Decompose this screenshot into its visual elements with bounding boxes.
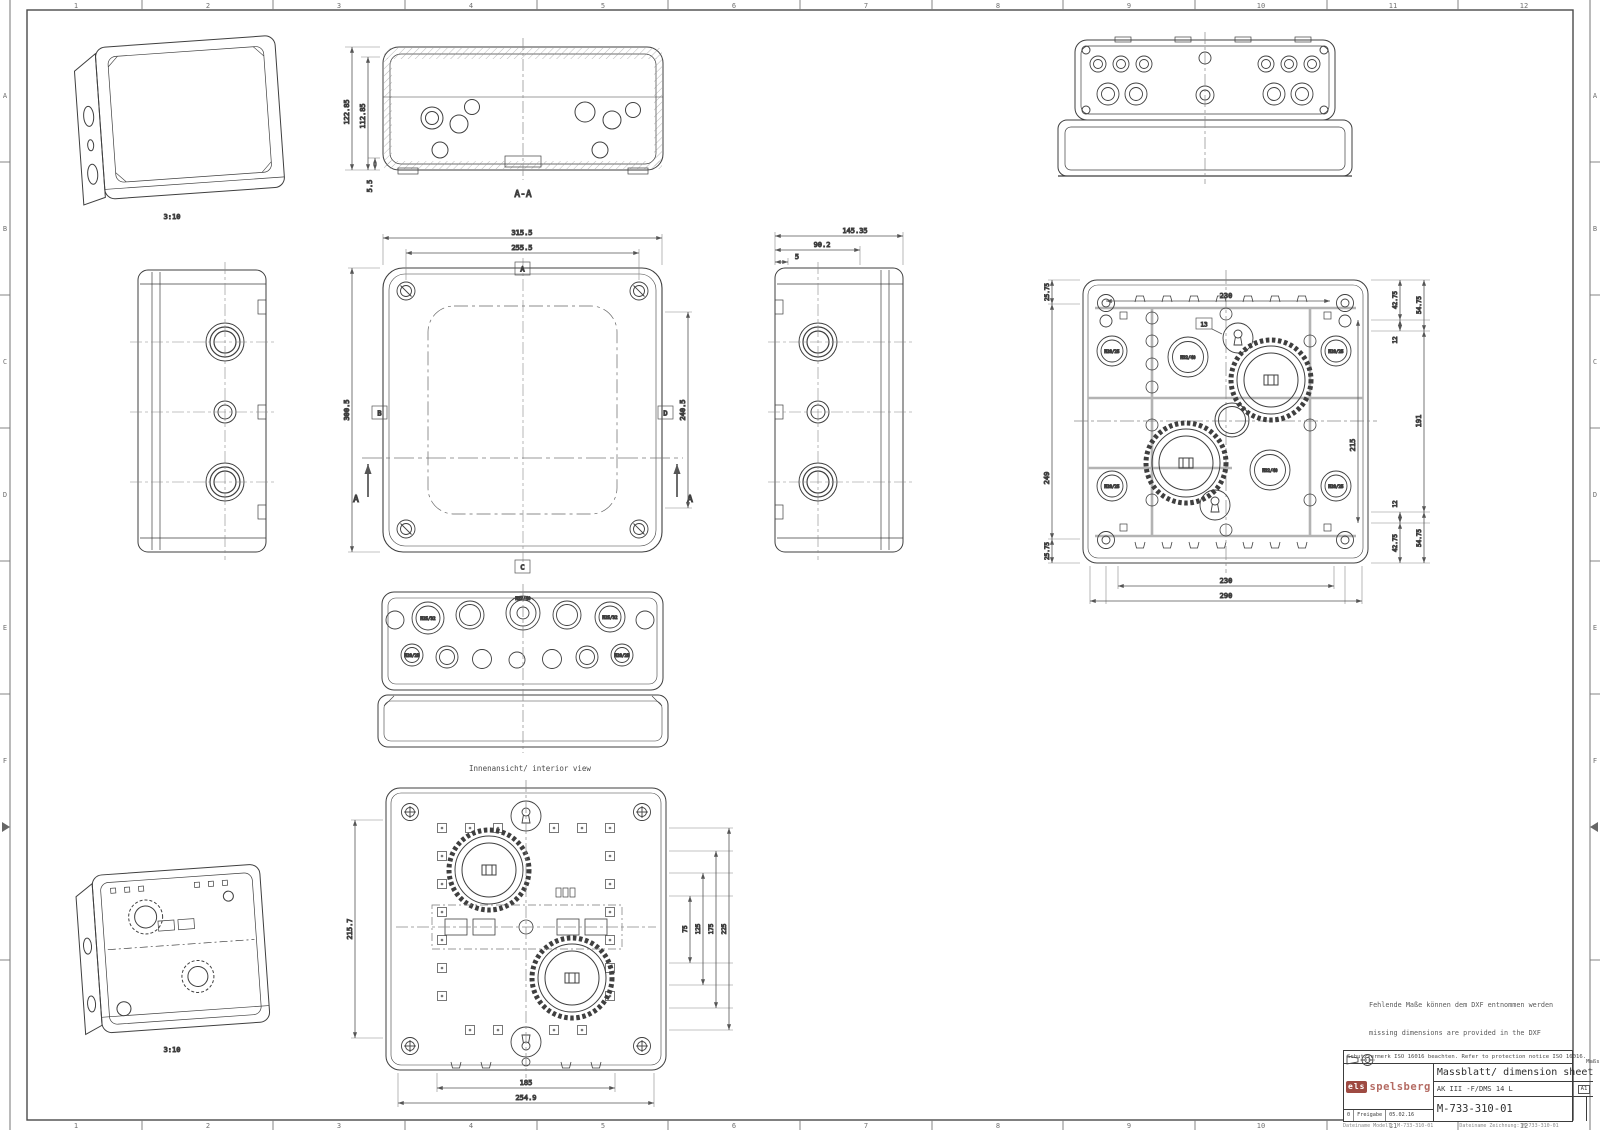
col-label: 2 [206, 1122, 210, 1130]
gland-label: M25/32 [602, 615, 618, 620]
dim-rear-lm: 249 [1043, 472, 1051, 485]
iso-open-scale: 3:10 [164, 1046, 181, 1054]
revision-row: 0 Freigabe 05.02.16 [1344, 1109, 1433, 1121]
drawing-number: M-733-310-01 [1437, 1103, 1513, 1115]
interior-caption: Innenansicht/ interior view [469, 764, 591, 773]
col-label: 5 [601, 2, 605, 10]
title-block-info-cell: Massblatt/ dimension sheet AK III -F/DMS… [1434, 1064, 1594, 1121]
gland-label: M20/25 [1328, 484, 1344, 489]
rear-view: M20/25 M20/25 M20/25 M20/25 M32/40 M32/4… [1043, 270, 1430, 604]
row-label: D [3, 491, 7, 499]
dim-section-outer: 122.85 [343, 99, 351, 124]
projection-symbol [1586, 1097, 1593, 1121]
dim-front-h1: 300.5 [343, 399, 351, 420]
drawing-sheet: 1 2 3 4 5 6 7 8 9 10 11 12 1 2 3 4 5 6 7… [0, 0, 1600, 1130]
note-en: missing dimensions are provided in the D… [1369, 1029, 1541, 1037]
brand-logo: els spelsberg [1344, 1064, 1433, 1109]
front-view: A A 315.5 255.5 300.5 240.5 A B D C [343, 229, 693, 573]
dim-rear-lb: 25.75 [1044, 542, 1051, 560]
fold-mark-left [2, 822, 10, 832]
dim-side-d2: 90.2 [814, 241, 831, 249]
col-label: 12 [1520, 2, 1528, 10]
left-side-view [130, 262, 275, 560]
ref-left: B [377, 410, 381, 418]
col-label: 2 [206, 2, 210, 10]
col-label: 4 [469, 2, 473, 10]
col-label: 3 [337, 2, 341, 10]
section-label: A-A [514, 189, 531, 200]
col-label: 6 [732, 1122, 736, 1130]
iso-closed-scale: 3:10 [164, 213, 181, 221]
title-block-body: els spelsberg 0 Freigabe 05.02.16 Massbl… [1344, 1064, 1572, 1121]
file-drawing: Dateiname Zeichnung: M-733-310-01 [1459, 1123, 1558, 1129]
gland-label: M20/25 [1104, 349, 1120, 354]
col-label: 4 [469, 1122, 473, 1130]
sheet-format: A1 [1578, 1085, 1591, 1094]
bottom-view: M25/32 M32/40 M25/32 M20/25 M20/25 [378, 584, 668, 753]
revision-date: 05.02.16 [1386, 1110, 1417, 1121]
product-row: AK III -F/DMS 14 L A1 [1434, 1082, 1594, 1097]
row-label: E [3, 624, 7, 632]
fold-mark-right [1590, 822, 1598, 832]
col-label: 6 [732, 2, 736, 10]
gland-label: M20/25 [404, 653, 420, 658]
col-label: 5 [601, 1122, 605, 1130]
dim-int-r3: 175 [708, 923, 715, 934]
row-label: B [3, 225, 7, 233]
row-label: C [1593, 358, 1597, 366]
dim-section-base: 5.5 [366, 180, 374, 193]
dim-rear-mid: 191 [1415, 415, 1423, 428]
dim-rear-b2: 290 [1220, 592, 1233, 600]
dim-int-b2: 254.9 [515, 1094, 536, 1102]
dim-rear-rg: 12 [1392, 336, 1399, 344]
cut-label-left: A [353, 494, 359, 505]
dim-front-h2: 240.5 [679, 399, 687, 420]
dim-front-w2: 255.5 [511, 244, 532, 252]
dim-side-d3: 5 [795, 253, 799, 261]
dim-rear-b1: 230 [1220, 577, 1233, 585]
dim-int-b1: 185 [520, 1079, 533, 1087]
col-label: 10 [1257, 2, 1265, 10]
revision-description: Freigabe [1354, 1110, 1386, 1121]
gland-label: M25/32 [420, 616, 436, 621]
iso-open-view: 3:10 [75, 864, 271, 1054]
dim-int-r1: 75 [682, 925, 689, 933]
drawing-canvas: 1 2 3 4 5 6 7 8 9 10 11 12 1 2 3 4 5 6 7… [0, 0, 1600, 1130]
dim-int-r2: 125 [695, 923, 702, 934]
row-label: A [1593, 92, 1598, 100]
grid-labels: 1 2 3 4 5 6 7 8 9 10 11 12 1 2 3 4 5 6 7… [3, 2, 1598, 1130]
dim-rear-rgb: 12 [1392, 500, 1399, 508]
first-angle-projection-icon [1344, 1051, 1376, 1069]
ref-top: A [520, 266, 525, 274]
dim-side-d1: 145.35 [842, 227, 867, 235]
dim-front-w1: 315.5 [511, 229, 532, 237]
col-label: 1 [74, 2, 78, 10]
document-title: Massblatt/ dimension sheet [1434, 1064, 1594, 1082]
drawing-number-row: M-733-310-01 [1434, 1097, 1594, 1121]
protection-note: Schutzvermerk ISO 16016 beachten. Refer … [1347, 1054, 1586, 1060]
col-label: 3 [337, 1122, 341, 1130]
dim-int-left: 215.7 [346, 918, 354, 939]
row-label: B [1593, 225, 1597, 233]
top-view [1058, 32, 1352, 184]
section-view: 122.85 112.85 5.5 A-A [343, 38, 663, 200]
row-label: C [3, 358, 7, 366]
dim-section-inner: 112.85 [359, 103, 367, 128]
revision-number: 0 [1344, 1110, 1354, 1121]
dim-rear-inner: 215 [1349, 439, 1357, 452]
col-label: 8 [996, 1122, 1000, 1130]
title-block-brand-cell: els spelsberg 0 Freigabe 05.02.16 [1344, 1064, 1434, 1121]
dim-rear-rt1: 42.75 [1392, 291, 1399, 309]
col-label: 9 [1127, 1122, 1131, 1130]
col-label: 10 [1257, 1122, 1265, 1130]
brand-wordmark: spelsberg [1369, 1081, 1430, 1093]
gland-label: M20/25 [1104, 484, 1120, 489]
dim-rear-rb1: 42.75 [1392, 534, 1399, 552]
ref-right: D [663, 410, 667, 418]
file-model: Dateiname Modell: M-733-310-01 [1343, 1123, 1433, 1129]
title-block-header: Schutzvermerk ISO 16016 beachten. Refer … [1344, 1051, 1572, 1064]
iso-closed-view: 3:10 [73, 35, 285, 221]
flag-label: 13 [1200, 322, 1208, 329]
file-name-row: Dateiname Modell: M-733-310-01 Dateiname… [1343, 1123, 1593, 1129]
ref-bottom: C [520, 564, 524, 572]
gland-label: M20/25 [1328, 349, 1344, 354]
note-de: Fehlende Maße können dem DXF entnommen w… [1369, 1001, 1553, 1009]
col-label: 9 [1127, 2, 1131, 10]
sheet-frame [0, 0, 1600, 1130]
dim-rear-top: 230 [1220, 292, 1233, 300]
dim-rear-rb2: 54.75 [1416, 529, 1423, 547]
title-block: Schutzvermerk ISO 16016 beachten. Refer … [1343, 1050, 1573, 1122]
product-name: AK III -F/DMS 14 L [1437, 1085, 1513, 1093]
col-label: 11 [1389, 2, 1397, 10]
gland-label: M32/40 [1180, 355, 1196, 360]
right-side-view: 145.35 90.2 5 [768, 227, 912, 560]
gland-label: M20/25 [614, 653, 630, 658]
col-label: 1 [74, 1122, 78, 1130]
dim-rear-lt: 25.75 [1044, 283, 1051, 301]
row-label: A [3, 92, 8, 100]
dim-rear-rt2: 54.75 [1416, 296, 1423, 314]
col-label: 8 [996, 2, 1000, 10]
brand-logo-mark: els [1346, 1081, 1367, 1093]
col-label: 7 [864, 2, 868, 10]
dim-int-r4: 225 [721, 923, 728, 934]
row-label: E [1593, 624, 1597, 632]
row-label: F [1593, 757, 1597, 765]
col-label: 7 [864, 1122, 868, 1130]
row-label: D [1593, 491, 1597, 499]
gland-label: M32/40 [1262, 468, 1278, 473]
row-label: F [3, 757, 7, 765]
interior-view: 215.7 75 125 175 225 185 254.9 [346, 780, 733, 1107]
